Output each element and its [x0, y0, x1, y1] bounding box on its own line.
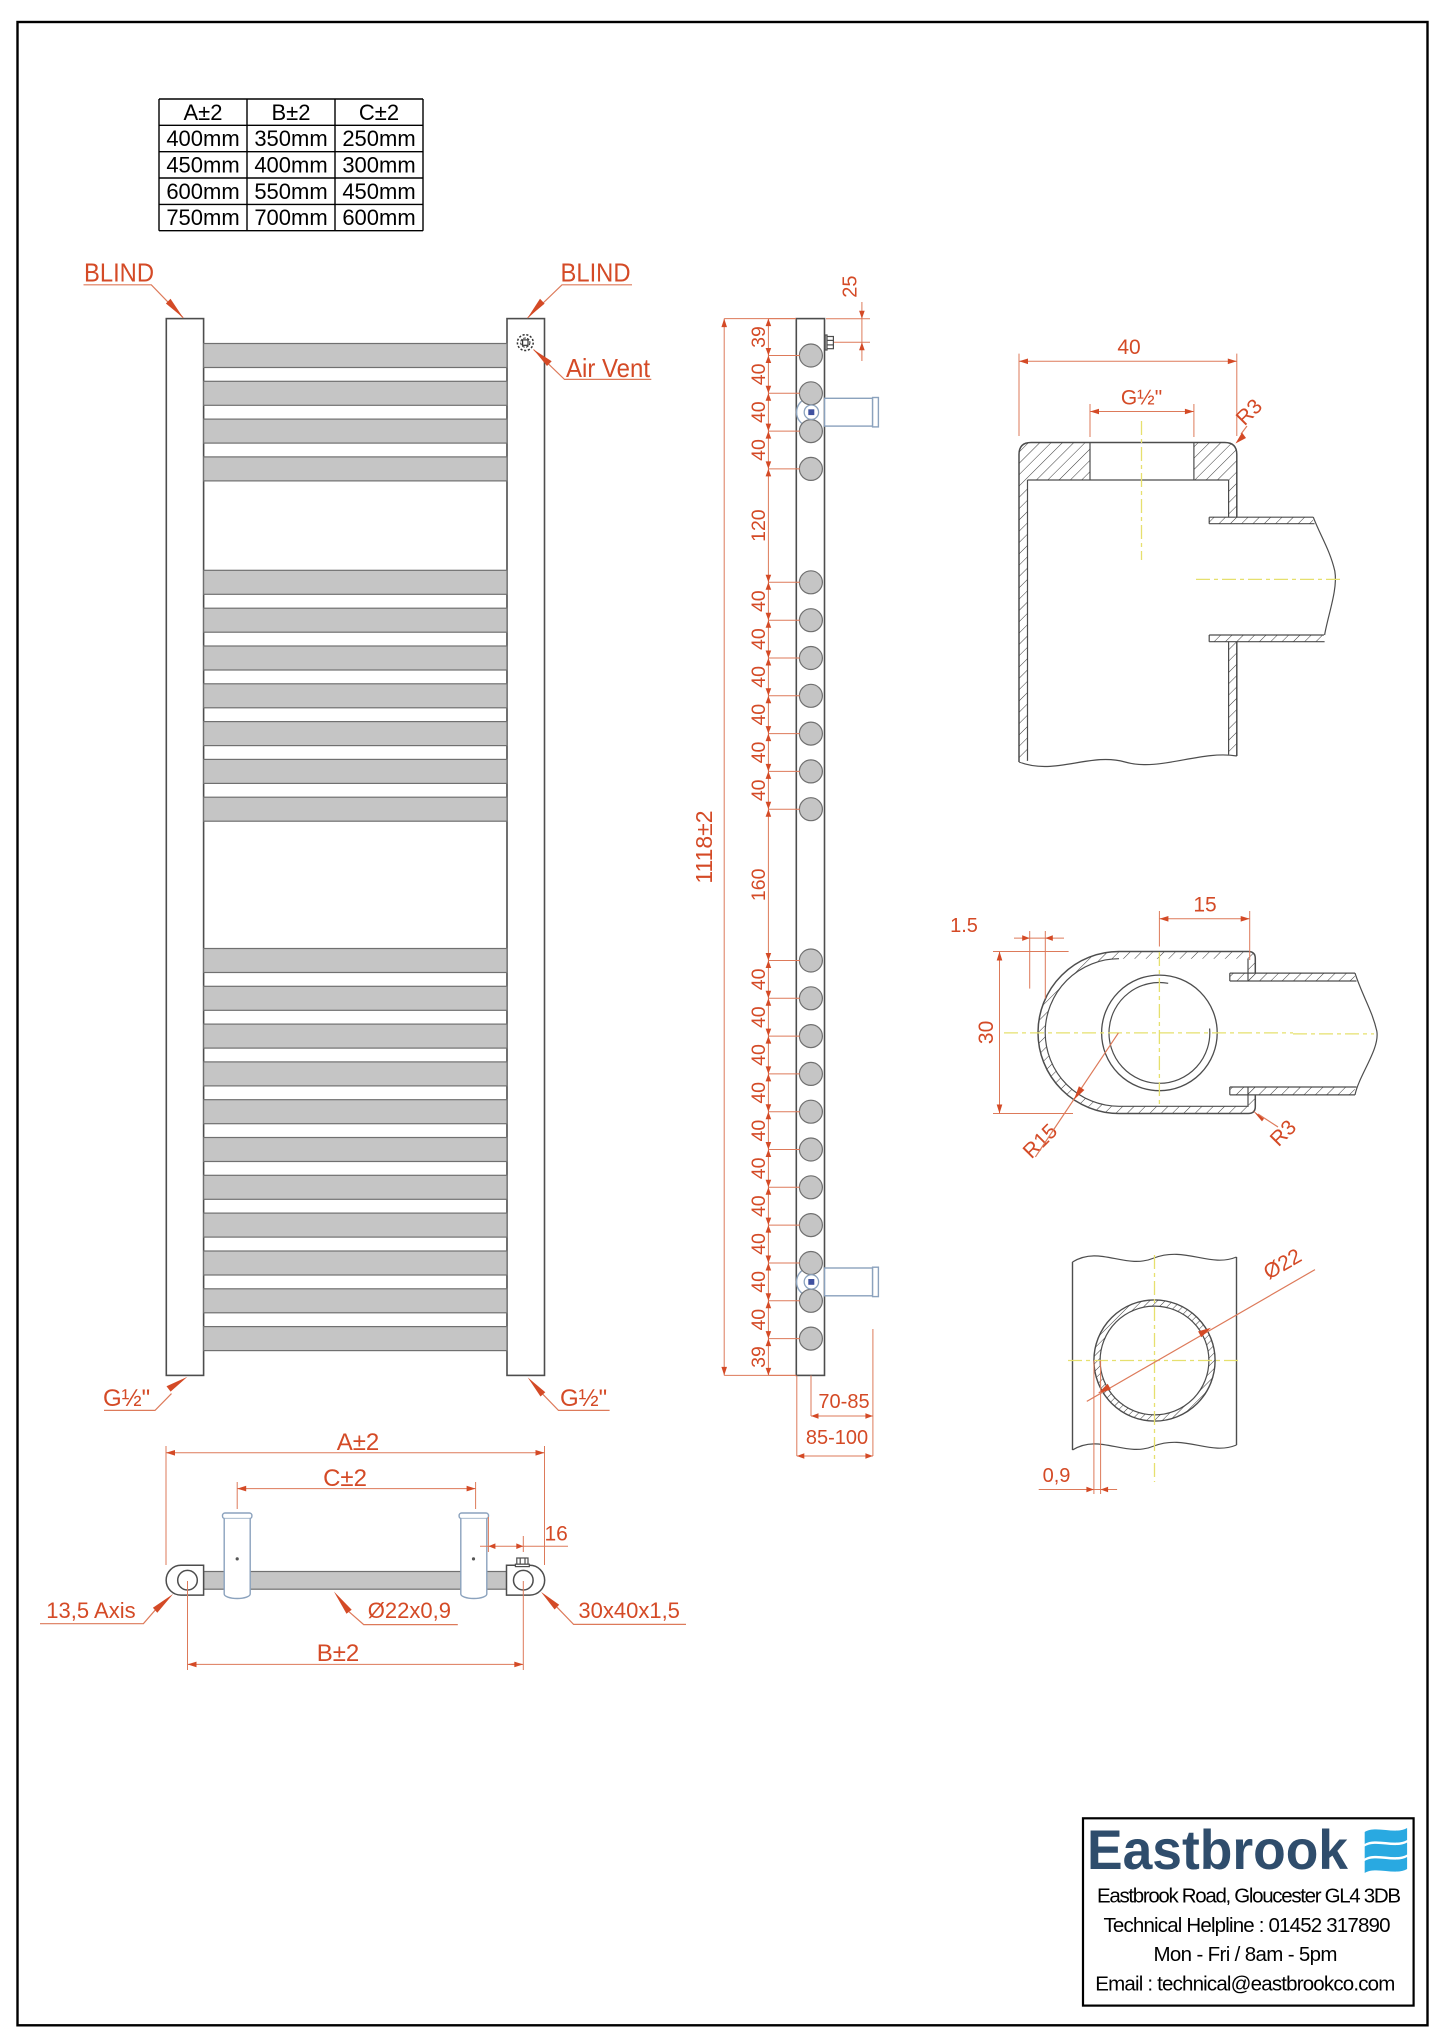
svg-text:40: 40 [748, 401, 770, 423]
svg-text:120: 120 [748, 509, 770, 542]
svg-text:C±2: C±2 [359, 100, 399, 125]
svg-text:450mm: 450mm [342, 179, 415, 204]
svg-text:40: 40 [748, 1309, 770, 1331]
svg-text:BLIND: BLIND [561, 258, 631, 288]
svg-text:40: 40 [748, 704, 770, 726]
svg-text:40: 40 [748, 666, 770, 688]
svg-text:400mm: 400mm [166, 126, 239, 151]
svg-text:300mm: 300mm [342, 153, 415, 178]
svg-text:600mm: 600mm [342, 205, 415, 230]
svg-text:450mm: 450mm [166, 153, 239, 178]
svg-text:400mm: 400mm [254, 153, 327, 178]
svg-text:B±2: B±2 [272, 100, 311, 125]
svg-text:R3: R3 [1266, 1116, 1301, 1151]
svg-text:Eastbrook: Eastbrook [1087, 1818, 1349, 1881]
svg-text:40: 40 [748, 1044, 770, 1066]
svg-text:Eastbrook Road, Gloucester GL4: Eastbrook Road, Gloucester GL4 3DB [1097, 1885, 1401, 1908]
svg-text:15: 15 [1193, 894, 1216, 917]
svg-text:A±2: A±2 [184, 100, 223, 125]
svg-text:550mm: 550mm [254, 179, 327, 204]
svg-text:40: 40 [748, 1120, 770, 1142]
svg-text:Technical Helpline : 01452 317: Technical Helpline : 01452 317890 [1104, 1914, 1391, 1937]
svg-text:40: 40 [748, 628, 770, 650]
svg-text:1118±2: 1118±2 [691, 810, 717, 883]
svg-text:25: 25 [840, 275, 862, 297]
svg-text:40: 40 [748, 1082, 770, 1104]
svg-text:40: 40 [748, 1271, 770, 1293]
svg-text:Mon - Fri / 8am - 5pm: Mon - Fri / 8am - 5pm [1154, 1943, 1338, 1966]
svg-text:750mm: 750mm [166, 205, 239, 230]
svg-text:160: 160 [748, 868, 770, 901]
svg-text:600mm: 600mm [166, 179, 239, 204]
svg-text:30x40x1,5: 30x40x1,5 [578, 1598, 680, 1623]
svg-text:40: 40 [748, 363, 770, 385]
svg-text:40: 40 [748, 1195, 770, 1217]
svg-text:40: 40 [748, 1006, 770, 1028]
svg-text:Email : technical@eastbrookco.: Email : technical@eastbrookco.com [1095, 1972, 1395, 1995]
svg-text:40: 40 [1117, 336, 1140, 359]
svg-text:250mm: 250mm [342, 126, 415, 151]
svg-text:40: 40 [748, 968, 770, 990]
svg-text:G½": G½" [560, 1385, 607, 1412]
svg-text:B±2: B±2 [317, 1640, 360, 1667]
svg-text:40: 40 [748, 590, 770, 612]
svg-text:BLIND: BLIND [84, 258, 154, 288]
svg-text:350mm: 350mm [254, 126, 327, 151]
svg-text:85-100: 85-100 [806, 1427, 868, 1449]
svg-text:39: 39 [748, 1346, 770, 1368]
svg-text:30: 30 [975, 1021, 998, 1044]
svg-text:Air Vent: Air Vent [566, 353, 651, 383]
svg-text:A±2: A±2 [337, 1429, 380, 1456]
svg-text:16: 16 [545, 1523, 568, 1546]
svg-text:Ø22x0,9: Ø22x0,9 [368, 1598, 451, 1623]
svg-text:1.5: 1.5 [950, 915, 978, 937]
svg-text:40: 40 [748, 742, 770, 764]
svg-text:G½": G½" [103, 1385, 150, 1412]
svg-text:70-85: 70-85 [818, 1391, 869, 1413]
svg-text:39: 39 [748, 326, 770, 348]
svg-text:0,9: 0,9 [1043, 1465, 1071, 1487]
svg-text:40: 40 [748, 1157, 770, 1179]
svg-text:G½": G½" [1121, 387, 1162, 410]
svg-text:40: 40 [748, 779, 770, 801]
svg-text:C±2: C±2 [323, 1465, 367, 1492]
svg-text:40: 40 [748, 1233, 770, 1255]
svg-text:40: 40 [748, 439, 770, 461]
svg-text:13,5 Axis: 13,5 Axis [46, 1598, 135, 1623]
svg-text:700mm: 700mm [254, 205, 327, 230]
